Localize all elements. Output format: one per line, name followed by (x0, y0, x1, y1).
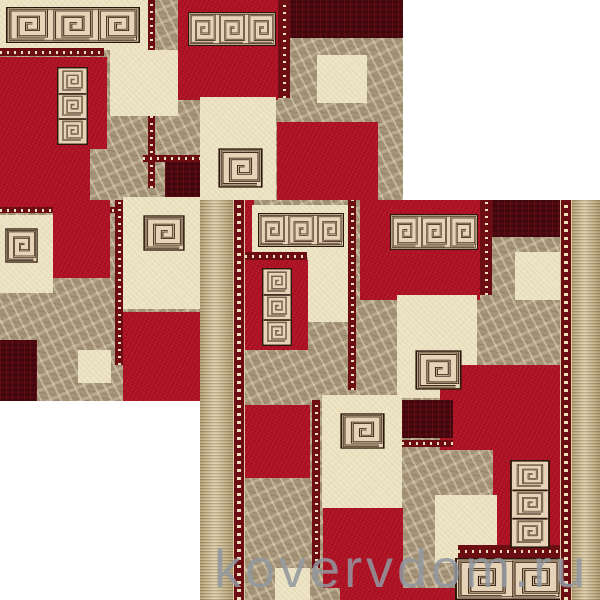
rug-patch-red (53, 200, 110, 278)
greek-key-band3-motif (188, 12, 276, 46)
rug-patch-dotv (480, 200, 492, 295)
watermark-text: kovervdom.ru (214, 538, 589, 600)
rug-patch-cream (110, 50, 178, 116)
rug-patch-red (240, 405, 310, 478)
greek-key-col3-motif (262, 268, 292, 346)
rug-patch-cream (515, 252, 560, 300)
rug-patch-maroon (290, 0, 403, 38)
rug-patch-maroon (492, 200, 560, 237)
rug-patch-red (0, 149, 90, 207)
greek-key-col3-motif (57, 67, 88, 145)
rug-patch-doth (0, 48, 104, 56)
rug-patch-red (0, 57, 107, 149)
rug-patch-red (175, 383, 203, 401)
rug-patch-dotv (348, 200, 356, 390)
rug-patch-maroon (402, 400, 453, 438)
rug-patch-dotv (115, 200, 123, 365)
greek-key-band3-motif (258, 213, 344, 247)
rug-patch-cream (317, 55, 367, 103)
greek-key-spiral-motif (340, 413, 385, 449)
carpet-product-photo: kovervdom.ru (0, 0, 600, 600)
greek-key-band3-motif (6, 7, 140, 43)
rug-patch-cream (308, 252, 348, 322)
rug-patch-cream (78, 350, 111, 383)
rug-patch-doth (245, 252, 307, 260)
greek-key-spiral-motif (415, 350, 462, 390)
greek-key-band3-motif (390, 214, 478, 250)
rug-patch-cream (123, 197, 203, 309)
greek-key-spiral-motif (5, 228, 38, 263)
rug-patch-doth (402, 440, 453, 447)
rug-patch-dotv (278, 0, 290, 98)
greek-key-col3-motif (510, 460, 550, 548)
greek-key-spiral-motif (143, 215, 185, 251)
rug-patch-cream (322, 395, 402, 508)
greek-key-spiral-motif (218, 148, 263, 188)
rug-patch-maroon (0, 340, 37, 401)
